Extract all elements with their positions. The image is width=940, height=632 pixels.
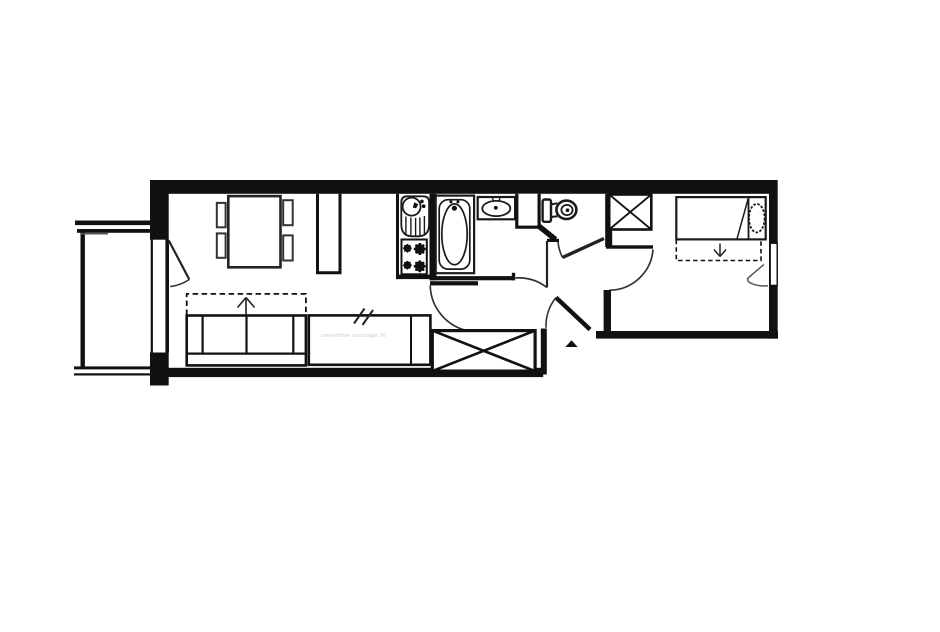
svg-text:convertible couchage 90: convertible couchage 90: [321, 333, 386, 339]
